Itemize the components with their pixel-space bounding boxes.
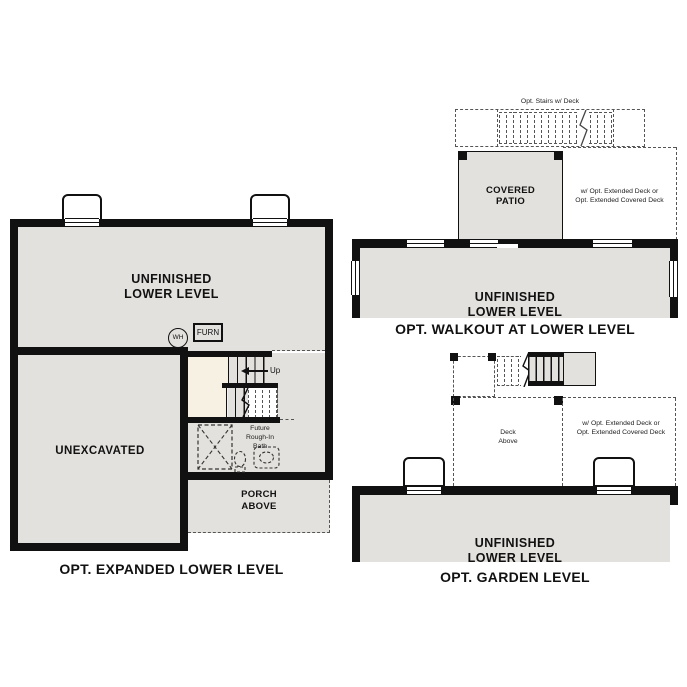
deck-above-line2: Above — [453, 437, 563, 446]
window — [351, 261, 360, 295]
room-label-line1: UNFINISHED — [360, 536, 670, 551]
patio-label-line2: PATIO — [458, 196, 563, 207]
room-label-line1: UNFINISHED — [360, 290, 670, 305]
room-label-unfinished: UNFINISHED LOWER LEVEL — [360, 290, 670, 320]
room-label-unexcavated: UNEXCAVATED — [18, 445, 182, 457]
exterior-wall-left — [352, 486, 360, 562]
patio-post — [554, 151, 563, 160]
up-arrow-line — [248, 370, 268, 372]
opt-stairs-label: Opt. Stairs w/ Deck — [455, 97, 645, 106]
plan-title-walkout: OPT. WALKOUT AT LOWER LEVEL — [352, 321, 678, 337]
deck-post — [450, 353, 458, 361]
dashed-line — [272, 350, 325, 351]
dashed-line — [280, 419, 294, 420]
bath-label-line2: Rough-In — [234, 433, 286, 442]
deck-option-line2: Opt. Extended Covered Deck — [563, 196, 676, 205]
deck-option-line1: w/ Opt. Extended Deck or — [565, 419, 677, 428]
plan-title-garden: OPT. GARDEN LEVEL — [352, 569, 678, 585]
room-label-line2: LOWER LEVEL — [360, 305, 670, 320]
stair-break-line — [239, 388, 251, 417]
dashed-line — [675, 398, 676, 486]
window — [669, 261, 678, 297]
porch-label: PORCH ABOVE — [188, 489, 330, 513]
plan-title-expanded: OPT. EXPANDED LOWER LEVEL — [10, 561, 333, 577]
opt-deck-landing-outline — [453, 356, 495, 397]
dashed-line — [497, 109, 498, 147]
window-well — [403, 457, 445, 487]
dashed-line — [613, 109, 614, 147]
room-label-line2: LOWER LEVEL — [360, 551, 670, 566]
stair-lower-flight-future — [248, 388, 278, 417]
window-well — [62, 194, 102, 221]
covered-patio-label: COVERED PATIO — [458, 185, 563, 207]
window — [407, 239, 444, 248]
patio-label-line1: COVERED — [458, 185, 563, 196]
room-label-line1: UNFINISHED — [18, 272, 325, 287]
bath-label: Future Rough-In Bath — [234, 424, 286, 451]
up-arrow-head — [241, 367, 249, 375]
window — [597, 486, 631, 495]
deck-option-label: w/ Opt. Extended Deck or Opt. Extended C… — [565, 419, 677, 437]
exterior-wall-right — [325, 219, 333, 480]
window-well — [250, 194, 290, 221]
exterior-wall-right — [670, 486, 678, 505]
window — [253, 218, 287, 227]
stair-landing — [563, 352, 596, 386]
dashed-line — [563, 147, 676, 148]
dashed-line — [453, 397, 676, 398]
up-label: Up — [270, 366, 280, 375]
deck-option-label: w/ Opt. Extended Deck or Opt. Extended C… — [563, 187, 676, 205]
porch-label-line1: PORCH — [188, 489, 330, 501]
window — [407, 486, 441, 495]
opt-deck-stair-treads — [499, 112, 612, 144]
patio-door-opening — [497, 244, 518, 248]
window-well — [593, 457, 635, 487]
deck-post — [488, 353, 496, 361]
exterior-wall-left — [10, 219, 18, 551]
opt-stair-treads — [497, 356, 523, 386]
exterior-wall-bottom — [10, 543, 188, 551]
window — [65, 218, 99, 227]
bath-label-line3: Bath — [234, 442, 286, 451]
window — [470, 239, 498, 248]
floorplan-sheet: UNFINISHED LOWER LEVEL UNEXCAVATED WH FU… — [0, 0, 687, 687]
bath-label-line1: Future — [234, 424, 286, 433]
deck-option-line2: Opt. Extended Covered Deck — [565, 428, 677, 437]
room-label-unfinished: UNFINISHED LOWER LEVEL — [18, 272, 325, 302]
deck-option-line1: w/ Opt. Extended Deck or — [563, 187, 676, 196]
dashed-line — [676, 147, 677, 240]
interior-wall-mid — [10, 347, 188, 355]
room-label-line2: LOWER LEVEL — [18, 287, 325, 302]
stair-treads — [528, 357, 563, 381]
stair-rail-bottom — [528, 381, 563, 386]
stair-break-line — [577, 110, 589, 146]
room-label-unfinished: UNFINISHED LOWER LEVEL — [360, 536, 670, 566]
water-heater-icon: WH — [168, 328, 188, 348]
patio-post — [458, 151, 467, 160]
furnace-box: FURN — [193, 323, 223, 342]
porch-label-line2: ABOVE — [188, 501, 330, 513]
deck-above-line1: Deck — [453, 428, 563, 437]
window — [593, 239, 632, 248]
deck-above-label: Deck Above — [453, 428, 563, 446]
